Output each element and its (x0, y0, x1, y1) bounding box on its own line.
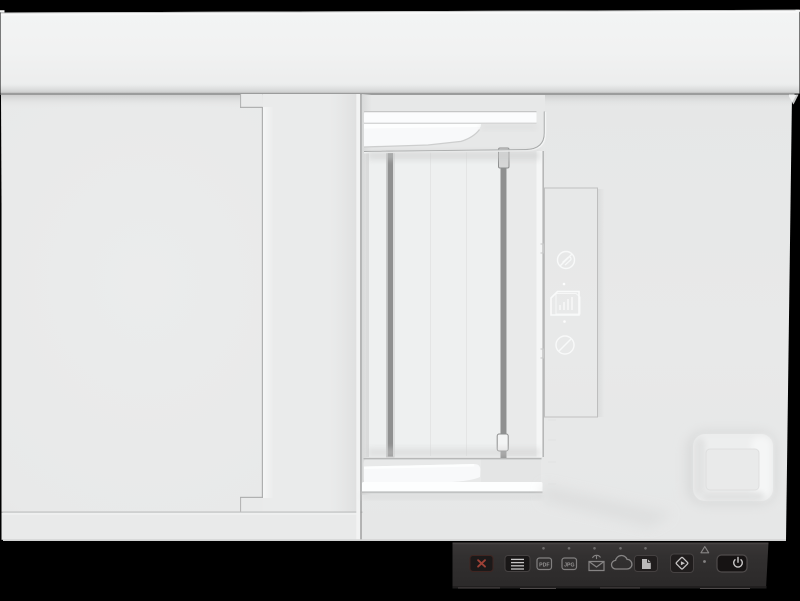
svg-text:PDF: PDF (539, 563, 549, 569)
svg-text:JPG: JPG (564, 563, 574, 569)
